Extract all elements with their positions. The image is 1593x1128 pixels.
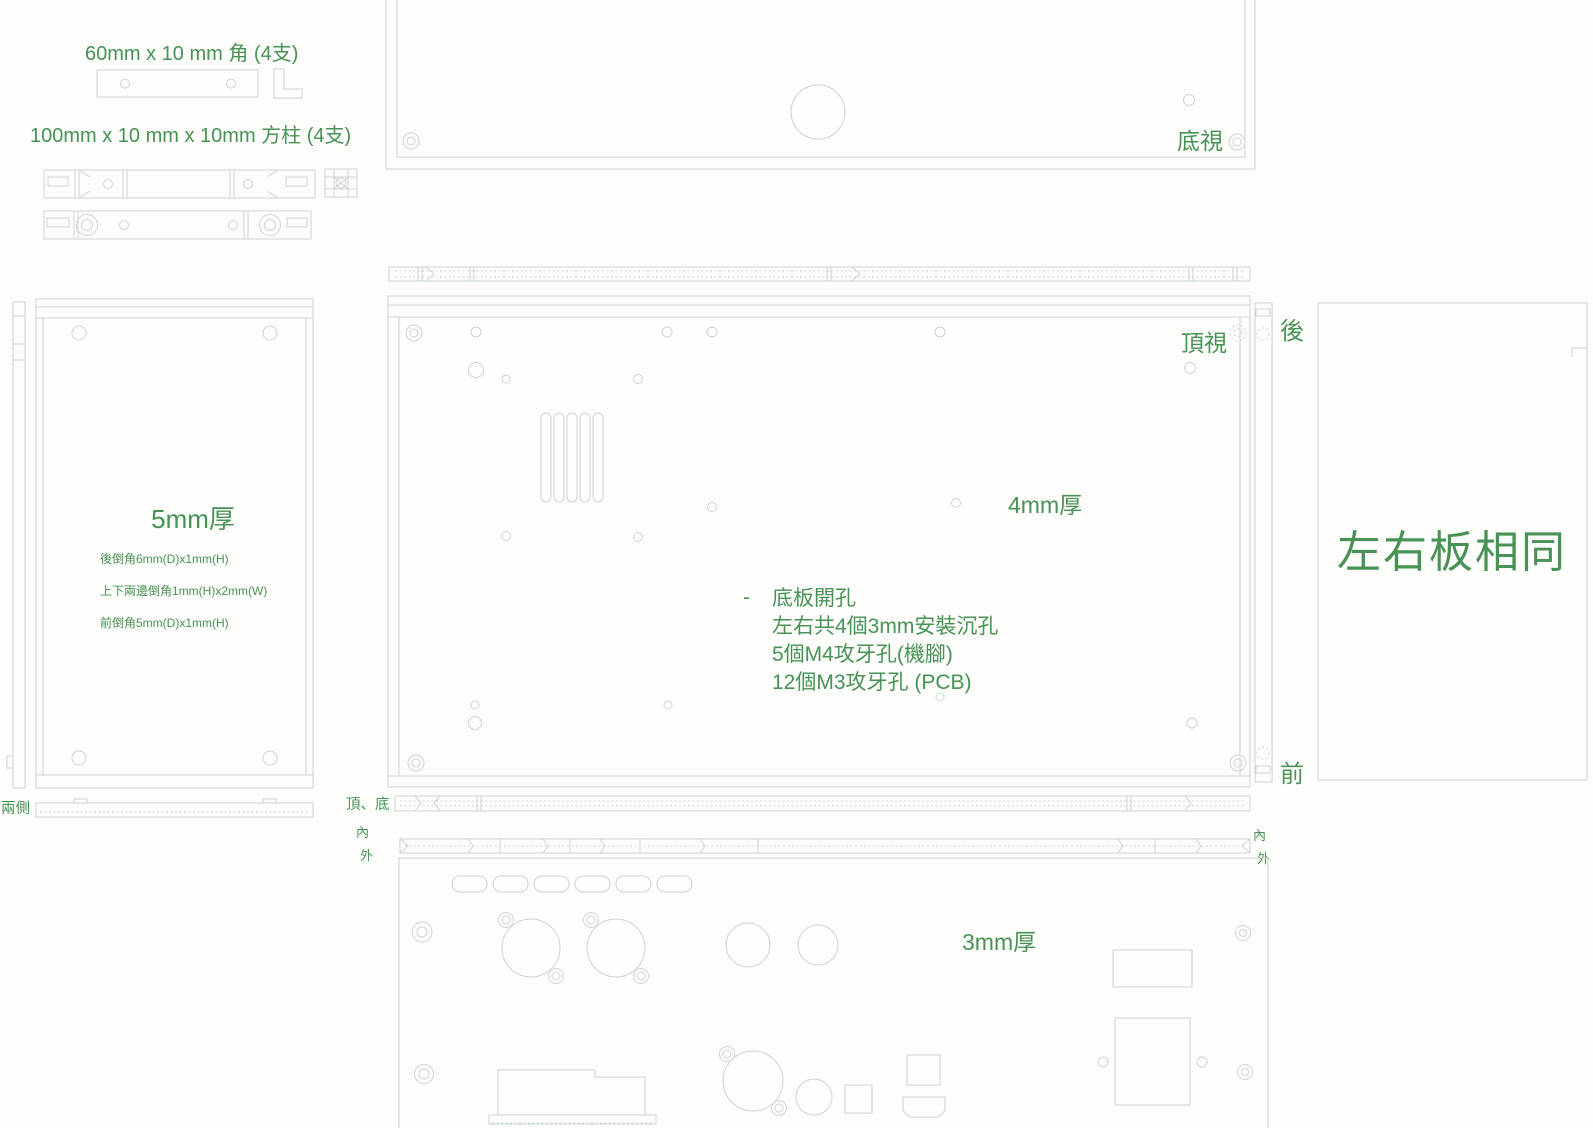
side-panel-thickness: 5mm厚: [151, 504, 235, 534]
jack-hole: [796, 1079, 832, 1115]
inner-outer-edge-strip: [400, 839, 1250, 853]
bottom-plate-thickness: 4mm厚: [1008, 492, 1082, 518]
right-edge-strip: [1255, 303, 1272, 782]
xlr-cutout-1: [499, 913, 564, 984]
vent-slots: [541, 413, 603, 502]
square-rod-part: [44, 169, 357, 239]
cad-drawing-canvas: 底視 60mm x 10 mm 角 (4支) 100mm x 10 mm x 1…: [0, 0, 1593, 1128]
rod-end-view: [325, 169, 357, 197]
hdmi-cutout: [903, 1097, 945, 1117]
drill-note-line1: 左右共4個3mm安裝沉孔: [772, 615, 998, 638]
rear-panel-view: [399, 858, 1268, 1128]
drill-note-line2: 5個M4攻牙孔(機腳): [772, 643, 953, 666]
inner-label-right: 內: [1253, 828, 1266, 843]
side-panel-note-edges: 上下兩邊倒角1mm(H)x2mm(W): [100, 584, 267, 598]
drill-note-title: 底板開孔: [772, 587, 856, 610]
iec-inlet-cutout: [489, 1070, 656, 1124]
square-cutout-1: [845, 1085, 872, 1113]
top-bottom-strip-label: 頂、底: [346, 796, 390, 813]
rod-part-label: 100mm x 10 mm x 10mm 方柱 (4支): [30, 124, 351, 147]
transformer-hole: [791, 85, 845, 139]
drill-note-bullet: -: [743, 586, 750, 609]
right-panel-note: 左右板相同: [1337, 528, 1567, 577]
xlr-cutout-3: [720, 1047, 787, 1116]
rear-panel-thickness: 3mm厚: [962, 929, 1036, 955]
side-panel-note-rear: 後倒角6mm(D)x1mm(H): [100, 552, 229, 566]
power-socket-cutout: [1098, 1018, 1207, 1105]
rear-vent-slots: [452, 876, 692, 892]
angle-part-label: 60mm x 10 mm 角 (4支): [85, 42, 298, 65]
top-plate-bottom-view: [386, 0, 1255, 169]
front-direction-label: 前: [1280, 761, 1304, 788]
top-view-label: 頂視: [1181, 330, 1227, 356]
rear-direction-label: 後: [1280, 318, 1304, 345]
panel-edge-strip-upper: [389, 267, 1250, 281]
outer-label-left: 外: [360, 848, 373, 863]
drill-note-line3: 12個M3攻牙孔 (PCB): [772, 671, 972, 694]
cad-drawing-sheet: 底視 60mm x 10 mm 角 (4支) 100mm x 10 mm x 1…: [0, 0, 1593, 1128]
l-bracket-end-view: [274, 69, 302, 98]
switch-cutout: [1113, 950, 1192, 987]
rca-hole-2: [798, 925, 838, 965]
both-sides-label: 兩側: [1, 800, 30, 817]
rca-hole-1: [726, 923, 770, 967]
side-panel-note-front: 前倒角5mm(D)x1mm(H): [100, 615, 229, 630]
top-bottom-edge-strip: [395, 796, 1250, 811]
bottom-view-label: 底視: [1177, 128, 1223, 154]
side-panel-edge-strip: [7, 302, 25, 788]
square-cutout-2: [907, 1055, 940, 1085]
side-panel-view: [36, 299, 313, 788]
side-panel-bottom-strip: [36, 799, 313, 817]
corner-bracket-part: [97, 69, 302, 98]
inner-label-left: 內: [356, 825, 369, 840]
bottom-plate-top-view: [388, 296, 1250, 787]
xlr-cutout-2: [584, 913, 649, 984]
